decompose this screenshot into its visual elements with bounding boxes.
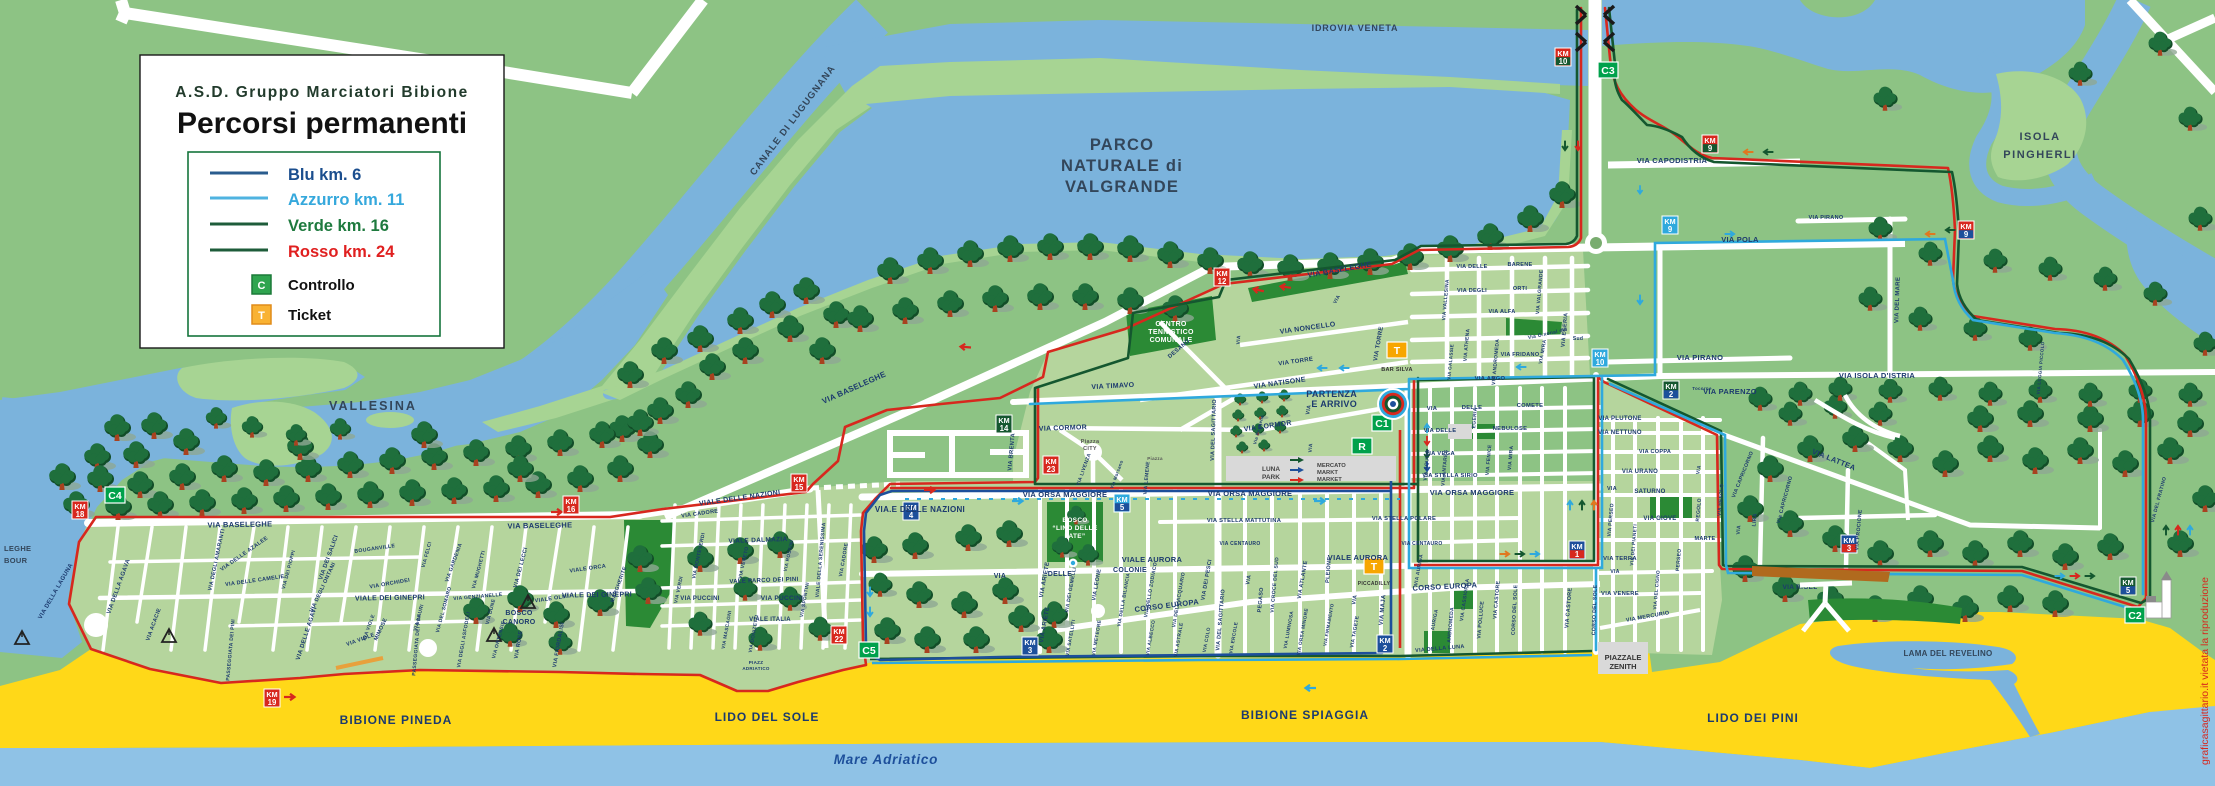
svg-text:VIA CAPODISTRIA: VIA CAPODISTRIA bbox=[1637, 156, 1708, 165]
svg-text:VIA STELLA MATTUTINA: VIA STELLA MATTUTINA bbox=[1207, 518, 1282, 524]
svg-text:MERCATO: MERCATO bbox=[1317, 463, 1346, 469]
svg-text:VIA: VIA bbox=[1427, 406, 1438, 412]
svg-text:BOSCO: BOSCO bbox=[1062, 517, 1087, 524]
svg-text:DELLE: DELLE bbox=[1048, 571, 1072, 578]
svg-text:IDROVIA VENETA: IDROVIA VENETA bbox=[1312, 23, 1399, 33]
svg-text:BAR SILVA: BAR SILVA bbox=[1381, 367, 1413, 373]
svg-text:E ARRIVO: E ARRIVO bbox=[1311, 399, 1357, 409]
svg-text:VIA PIRANO: VIA PIRANO bbox=[1809, 215, 1844, 221]
svg-text:Sud: Sud bbox=[1573, 336, 1583, 342]
svg-text:C3: C3 bbox=[1601, 65, 1615, 77]
svg-text:MARTE: MARTE bbox=[1694, 536, 1715, 542]
svg-text:Verde km. 16: Verde km. 16 bbox=[288, 217, 389, 235]
svg-text:Tocorne: Tocorne bbox=[1692, 386, 1712, 391]
svg-text:VIA DEGLI: VIA DEGLI bbox=[1457, 288, 1487, 294]
svg-text:MARKET: MARKET bbox=[1317, 477, 1342, 483]
svg-text:C2: C2 bbox=[2128, 610, 2142, 622]
svg-text:VIA STELLA SIRIO: VIA STELLA SIRIO bbox=[1422, 473, 1478, 479]
svg-text:23: 23 bbox=[1047, 465, 1056, 474]
svg-text:C1: C1 bbox=[1375, 418, 1389, 430]
svg-text:LIDO DEL SOLE: LIDO DEL SOLE bbox=[715, 710, 820, 724]
svg-text:VIA CENTAURO: VIA CENTAURO bbox=[1219, 541, 1260, 547]
svg-text:R: R bbox=[1358, 441, 1366, 453]
svg-text:5: 5 bbox=[2126, 586, 2131, 595]
svg-text:VIA STELLA POLARE: VIA STELLA POLARE bbox=[1372, 516, 1436, 522]
svg-text:T: T bbox=[1394, 345, 1401, 357]
svg-text:ORTI: ORTI bbox=[1513, 286, 1528, 292]
svg-text:LEGHE: LEGHE bbox=[4, 544, 31, 553]
svg-text:9: 9 bbox=[1708, 144, 1713, 153]
svg-text:Controllo: Controllo bbox=[288, 277, 355, 294]
svg-text:LIRA: LIRA bbox=[1751, 513, 1758, 527]
svg-text:“LINO DELLE: “LINO DELLE bbox=[1052, 525, 1098, 532]
svg-text:Percorsi permanenti: Percorsi permanenti bbox=[177, 107, 467, 140]
svg-text:Piazza: Piazza bbox=[1081, 439, 1100, 445]
svg-text:VIA PIRANO: VIA PIRANO bbox=[1677, 353, 1723, 362]
svg-text:VIA: VIA bbox=[994, 573, 1007, 580]
svg-text:VIA BASELEGHE: VIA BASELEGHE bbox=[207, 519, 272, 529]
svg-text:18: 18 bbox=[76, 510, 85, 519]
svg-text:BOUR: BOUR bbox=[4, 556, 28, 565]
svg-text:VIALE DEI GINEPRI: VIALE DEI GINEPRI bbox=[562, 591, 632, 599]
svg-text:Piazza: Piazza bbox=[1147, 456, 1163, 461]
svg-text:VIA BASELEGHE: VIA BASELEGHE bbox=[507, 520, 572, 530]
svg-text:9: 9 bbox=[1668, 225, 1673, 234]
svg-text:VIA ORSA MAGGIORE: VIA ORSA MAGGIORE bbox=[1023, 490, 1108, 499]
svg-text:ADRIATICO: ADRIATICO bbox=[742, 666, 770, 671]
svg-text:19: 19 bbox=[268, 698, 277, 707]
svg-text:LUNA: LUNA bbox=[1262, 466, 1280, 473]
svg-text:VIA URANO: VIA URANO bbox=[1622, 469, 1658, 475]
svg-text:FATE”: FATE” bbox=[1065, 533, 1086, 540]
svg-text:12: 12 bbox=[1218, 277, 1227, 286]
svg-text:22: 22 bbox=[835, 635, 844, 644]
svg-text:3: 3 bbox=[1028, 646, 1033, 655]
svg-text:VIA POLA: VIA POLA bbox=[1721, 235, 1759, 244]
svg-text:PARTENZA: PARTENZA bbox=[1306, 389, 1357, 399]
svg-text:10: 10 bbox=[1596, 358, 1605, 367]
svg-text:VIA: VIA bbox=[1736, 525, 1743, 535]
svg-text:Blu km. 6: Blu km. 6 bbox=[288, 166, 361, 184]
svg-text:16: 16 bbox=[567, 505, 576, 514]
svg-text:CENTRO: CENTRO bbox=[1155, 321, 1187, 328]
svg-text:VIA GIOVE: VIA GIOVE bbox=[1643, 516, 1676, 522]
svg-text:VIA PUCCINI: VIA PUCCINI bbox=[680, 596, 719, 602]
svg-text:VIALE DEI GINEPRI: VIALE DEI GINEPRI bbox=[355, 594, 425, 602]
svg-text:A.S.D. Gruppo Marciatori Bibio: A.S.D. Gruppo Marciatori Bibione bbox=[175, 84, 468, 101]
svg-text:Azzurro km. 11: Azzurro km. 11 bbox=[288, 191, 404, 209]
svg-text:COMETE: COMETE bbox=[1517, 403, 1544, 409]
svg-text:VIA NETTUNO: VIA NETTUNO bbox=[1598, 430, 1642, 436]
svg-text:15: 15 bbox=[795, 483, 804, 492]
svg-text:PIAZZALE: PIAZZALE bbox=[1605, 653, 1642, 662]
svg-text:graficasagittario.it vietata l: graficasagittario.it vietata la riproduz… bbox=[2199, 577, 2211, 765]
svg-text:Ticket: Ticket bbox=[288, 307, 331, 324]
svg-text:SATURNO: SATURNO bbox=[1634, 489, 1665, 495]
svg-text:C5: C5 bbox=[862, 645, 876, 657]
svg-text:CANORO: CANORO bbox=[503, 619, 536, 626]
svg-text:ZENITH: ZENITH bbox=[1609, 662, 1636, 671]
svg-text:VIA: VIA bbox=[1236, 335, 1243, 345]
svg-text:2: 2 bbox=[1669, 390, 1674, 399]
svg-text:VALLESINA: VALLESINA bbox=[329, 399, 417, 413]
svg-text:VIA FRIDANO: VIA FRIDANO bbox=[1501, 352, 1540, 358]
svg-text:VIA ARGO: VIA ARGO bbox=[1475, 376, 1506, 382]
svg-text:VIA COPPA: VIA COPPA bbox=[1639, 449, 1671, 455]
svg-text:ISOLA: ISOLA bbox=[2019, 131, 2060, 143]
svg-text:Rosso km. 24: Rosso km. 24 bbox=[288, 243, 395, 261]
svg-text:T: T bbox=[1371, 561, 1378, 573]
svg-text:VIA CENTAURO: VIA CENTAURO bbox=[1401, 541, 1442, 547]
svg-text:VIA ORSA MAGGIORE: VIA ORSA MAGGIORE bbox=[1208, 489, 1293, 498]
svg-text:3: 3 bbox=[1847, 544, 1852, 553]
svg-text:CITY: CITY bbox=[1083, 446, 1097, 452]
svg-text:VIA: VIA bbox=[1610, 569, 1619, 575]
svg-text:COLONIE: COLONIE bbox=[1113, 567, 1147, 574]
svg-text:1: 1 bbox=[1575, 550, 1580, 559]
svg-text:VIA DELLE: VIA DELLE bbox=[1456, 264, 1487, 270]
svg-text:BARENE: BARENE bbox=[1507, 262, 1532, 268]
svg-text:BIBIONE SPIAGGIA: BIBIONE SPIAGGIA bbox=[1241, 708, 1369, 722]
svg-text:NEBULOSE: NEBULOSE bbox=[1493, 426, 1528, 432]
svg-text:LIDO DEI PINI: LIDO DEI PINI bbox=[1707, 711, 1799, 725]
svg-text:PARCO: PARCO bbox=[1090, 136, 1154, 154]
svg-text:5: 5 bbox=[1120, 503, 1125, 512]
svg-text:Mare Adriatico: Mare Adriatico bbox=[834, 752, 938, 767]
svg-text:VIA ORSA MAGGIORE: VIA ORSA MAGGIORE bbox=[1430, 488, 1515, 497]
svg-text:LAMA DEL REVELINO: LAMA DEL REVELINO bbox=[1903, 649, 1992, 658]
svg-text:PIAZZ: PIAZZ bbox=[749, 660, 764, 665]
svg-text:VIA: VIA bbox=[1607, 486, 1617, 492]
svg-text:T: T bbox=[258, 310, 265, 322]
svg-text:9: 9 bbox=[1964, 230, 1969, 239]
svg-text:VIA ALFA: VIA ALFA bbox=[1488, 309, 1515, 315]
svg-text:VIA DELLE: VIA DELLE bbox=[1424, 428, 1457, 434]
svg-text:VIA PLUTONE: VIA PLUTONE bbox=[1598, 416, 1641, 422]
svg-text:PICCADILLY: PICCADILLY bbox=[1358, 581, 1391, 587]
svg-text:VIA VENERE: VIA VENERE bbox=[1601, 591, 1639, 597]
svg-text:C4: C4 bbox=[108, 490, 122, 502]
svg-text:PINGHERLI: PINGHERLI bbox=[2003, 149, 2076, 161]
svg-text:VIA ISOLA D'ISTRIA: VIA ISOLA D'ISTRIA bbox=[1839, 371, 1915, 380]
svg-text:2: 2 bbox=[1383, 644, 1388, 653]
svg-text:VALGRANDE: VALGRANDE bbox=[1065, 178, 1179, 196]
svg-text:10: 10 bbox=[1559, 57, 1568, 66]
svg-text:BIBIONE PINEDA: BIBIONE PINEDA bbox=[340, 713, 453, 727]
svg-text:NATURALE di: NATURALE di bbox=[1061, 157, 1183, 175]
svg-text:VIA: VIA bbox=[1308, 443, 1315, 453]
svg-text:VIA PUCCINI: VIA PUCCINI bbox=[761, 595, 803, 602]
svg-text:VIALE AURORA: VIALE AURORA bbox=[1328, 553, 1389, 562]
svg-text:VIA.E DELLE NAZIONI: VIA.E DELLE NAZIONI bbox=[875, 505, 965, 514]
svg-text:MARKT: MARKT bbox=[1317, 470, 1338, 476]
svg-text:TENNISTICO: TENNISTICO bbox=[1148, 329, 1194, 336]
svg-text:BOSCO: BOSCO bbox=[505, 610, 532, 617]
svg-text:PARK: PARK bbox=[1262, 474, 1280, 481]
svg-text:C: C bbox=[258, 280, 266, 292]
svg-text:14: 14 bbox=[1000, 424, 1009, 433]
